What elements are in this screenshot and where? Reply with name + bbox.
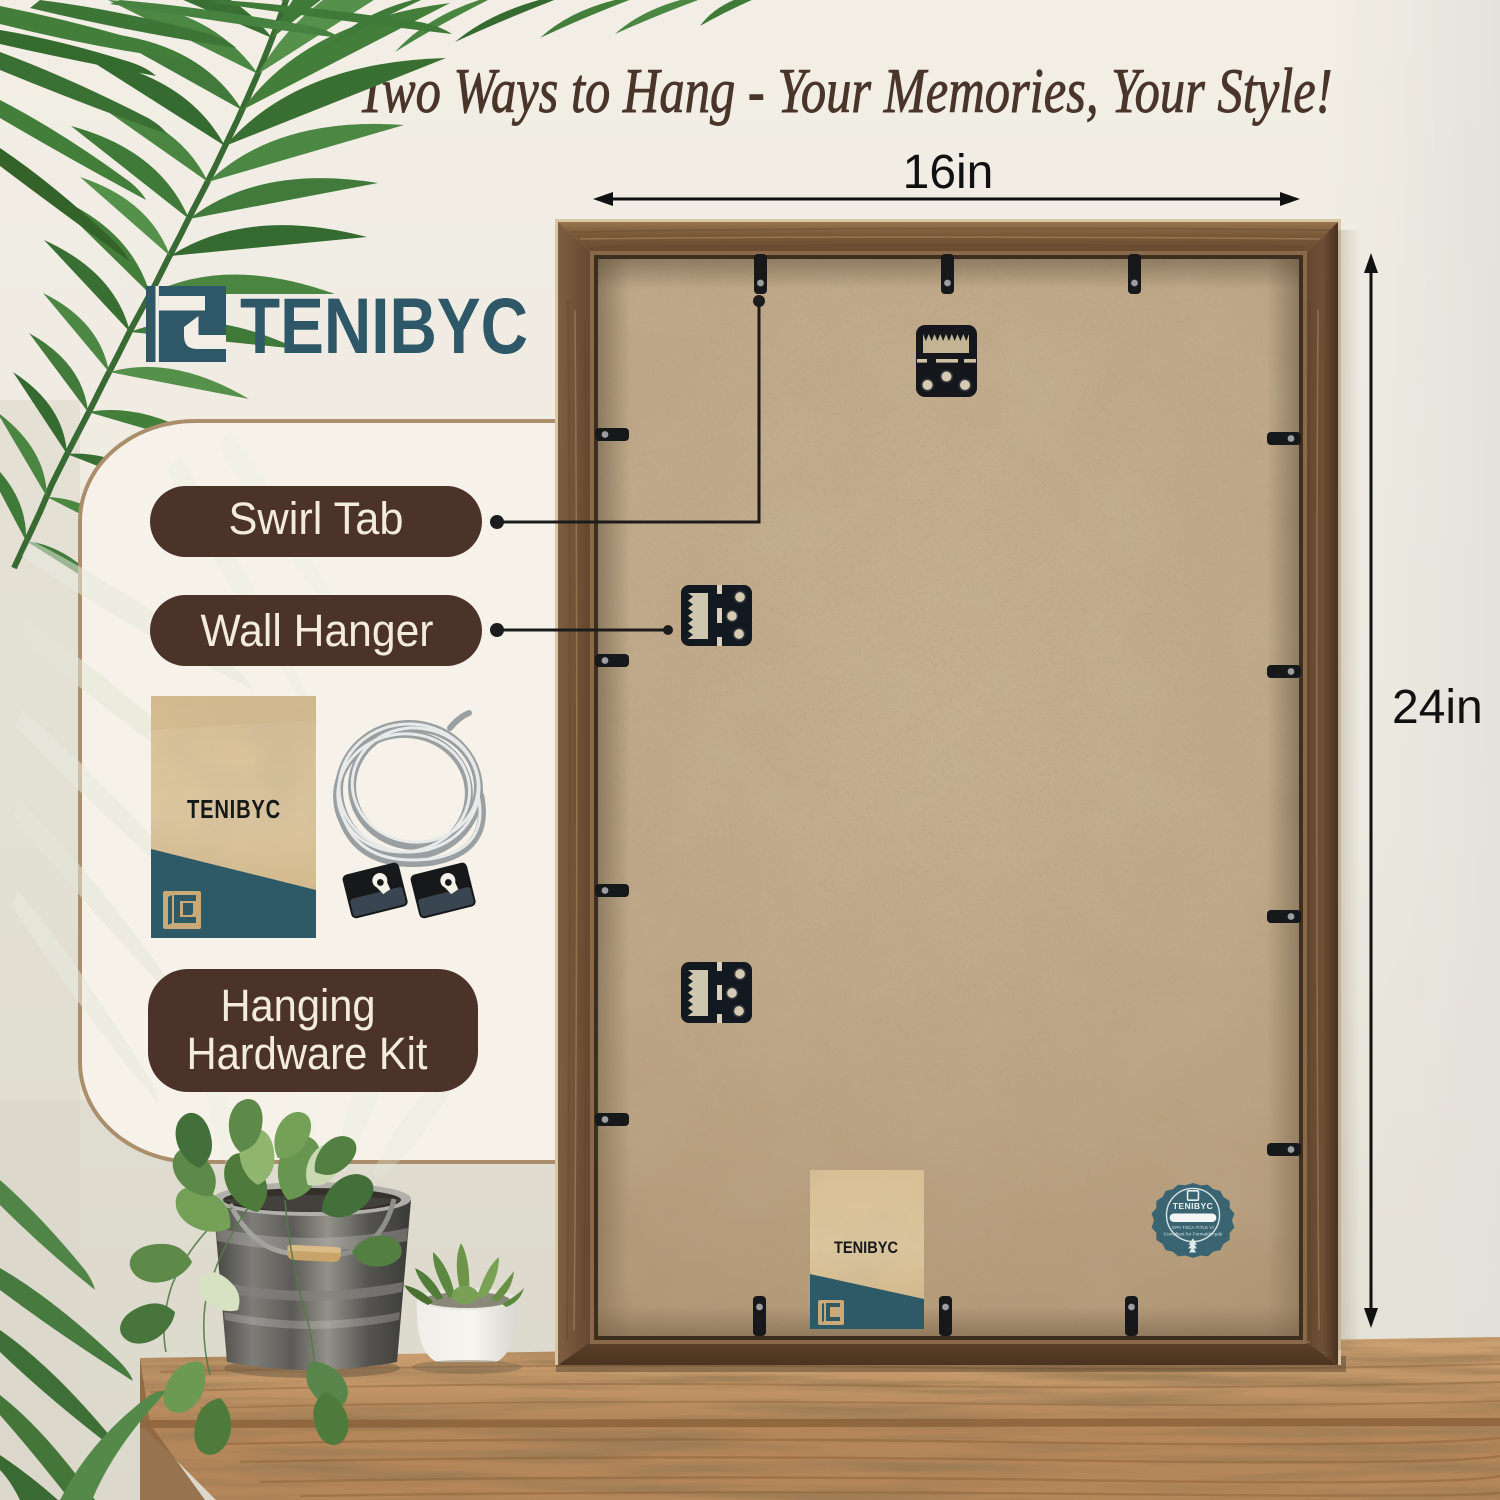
svg-text:TENIBYC: TENIBYC — [240, 281, 528, 370]
svg-text:Hanging: Hanging — [221, 980, 376, 1031]
svg-text:Compliant for Formaldehyde: Compliant for Formaldehyde — [1164, 1231, 1223, 1236]
svg-text:Wall Hanger: Wall Hanger — [201, 605, 434, 656]
svg-text:Hardware Kit: Hardware Kit — [187, 1028, 428, 1079]
svg-text:TENIBYC: TENIBYC — [187, 794, 281, 824]
svg-text:Two Ways to Hang - Your Memori: Two Ways to Hang - Your Memories, Your S… — [358, 55, 1333, 126]
svg-text:EPA TSCA TITLE VI: EPA TSCA TITLE VI — [1172, 1225, 1214, 1230]
svg-text:TENIBYC: TENIBYC — [834, 1238, 898, 1257]
svg-text:16in: 16in — [903, 146, 994, 199]
svg-text:TENIBYC: TENIBYC — [1173, 1201, 1213, 1211]
svg-text:24in: 24in — [1392, 681, 1483, 734]
svg-text:Swirl Tab: Swirl Tab — [229, 493, 404, 544]
